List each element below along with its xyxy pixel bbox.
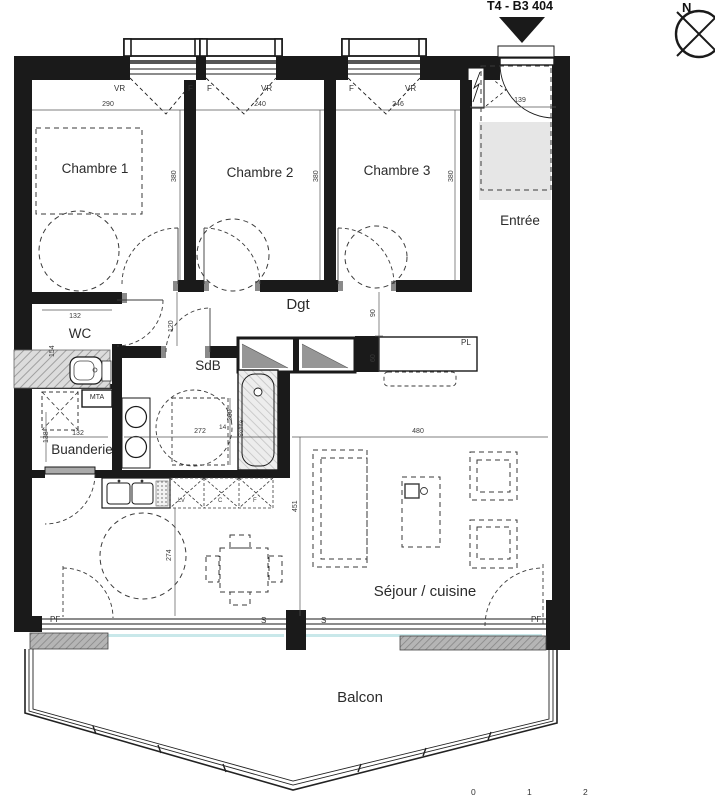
scale-tick-1: 1: [527, 788, 532, 797]
entrance-marker-icon: [499, 17, 545, 43]
room-label-entree: Entrée: [480, 214, 560, 228]
appliance-lv: LV: [178, 498, 185, 504]
scale-tick-2: 2: [583, 788, 588, 797]
bathroom-fixtures: [122, 370, 278, 470]
bedroom-furniture: [36, 128, 407, 291]
appliance-f: F: [253, 498, 257, 504]
pl-tag: PL: [461, 339, 471, 347]
dim-sejour-width: 480: [398, 428, 438, 435]
north-compass: [676, 11, 715, 57]
appliance-c: C: [218, 498, 222, 504]
s-tag-2: S: [321, 617, 326, 625]
dim-wc-width: 132: [55, 313, 95, 320]
s-tag-1: S: [261, 617, 266, 625]
room-label-dgt: Dgt: [268, 297, 328, 312]
vr-tag-3: VR: [405, 85, 416, 93]
dim-sejour-depth: 451: [292, 500, 299, 512]
north-label: N: [682, 1, 691, 14]
kitchen-counter: [102, 478, 273, 508]
room-label-balcon: Balcon: [320, 690, 400, 705]
f-tag-2: F: [207, 85, 212, 93]
dim-chambre1-depth: 380: [171, 170, 178, 182]
dim-buanderie-width: 132: [58, 430, 98, 437]
dim-wc-depth: 154: [49, 345, 56, 357]
room-label-wc: WC: [60, 327, 100, 341]
soffit-label: Soffite: [239, 420, 245, 437]
pf-tag-right: PF: [531, 616, 541, 624]
f-tag-1: F: [188, 85, 193, 93]
vr-tag-2: VR: [261, 85, 272, 93]
room-label-chambre3: Chambre 3: [342, 164, 452, 178]
dim-dgt-b: 60: [370, 354, 377, 362]
dim-sdb-tub-offset: 14: [219, 425, 226, 432]
entree-closet-shade: [479, 122, 551, 200]
pf-tag-left: PF: [50, 616, 60, 624]
room-label-sdb: SdB: [180, 359, 236, 373]
dim-chambre3-depth: 380: [448, 170, 455, 182]
f-tag-3: F: [349, 85, 354, 93]
mta-tag: MTA: [82, 394, 112, 401]
dim-chambre2-width: 240: [240, 101, 280, 108]
dim-entree-door: 139: [502, 97, 538, 104]
room-label-buanderie: Buanderie: [34, 443, 130, 457]
balcony: [25, 633, 557, 790]
dim-chambre1-width: 290: [88, 101, 128, 108]
vr-tag-1: VR: [114, 85, 125, 93]
dim-chambre2-depth: 380: [313, 170, 320, 182]
plan-title: T4 - B3 404: [455, 0, 585, 13]
room-label-chambre1: Chambre 1: [40, 162, 150, 176]
dim-buanderie-depth: 138: [43, 431, 50, 443]
scale-tick-0: 0: [471, 788, 476, 797]
dim-sdb-depth: 200: [227, 409, 234, 421]
floor-plan-page: T4 - B3 404 N VR F F VR F VR Chambre 1 C…: [0, 0, 715, 800]
room-label-chambre2: Chambre 2: [205, 166, 315, 180]
dim-sdb-width: 272: [180, 428, 220, 435]
dim-dgt-a: 90: [370, 309, 377, 317]
balcony-screen-right: [400, 636, 546, 650]
dim-kitchen-run: 274: [166, 549, 173, 561]
dim-dgt-width: 120: [168, 320, 175, 332]
room-label-sejour: Séjour / cuisine: [355, 584, 495, 599]
dim-chambre3-width: 246: [378, 101, 418, 108]
balcony-screen-left: [30, 633, 108, 649]
